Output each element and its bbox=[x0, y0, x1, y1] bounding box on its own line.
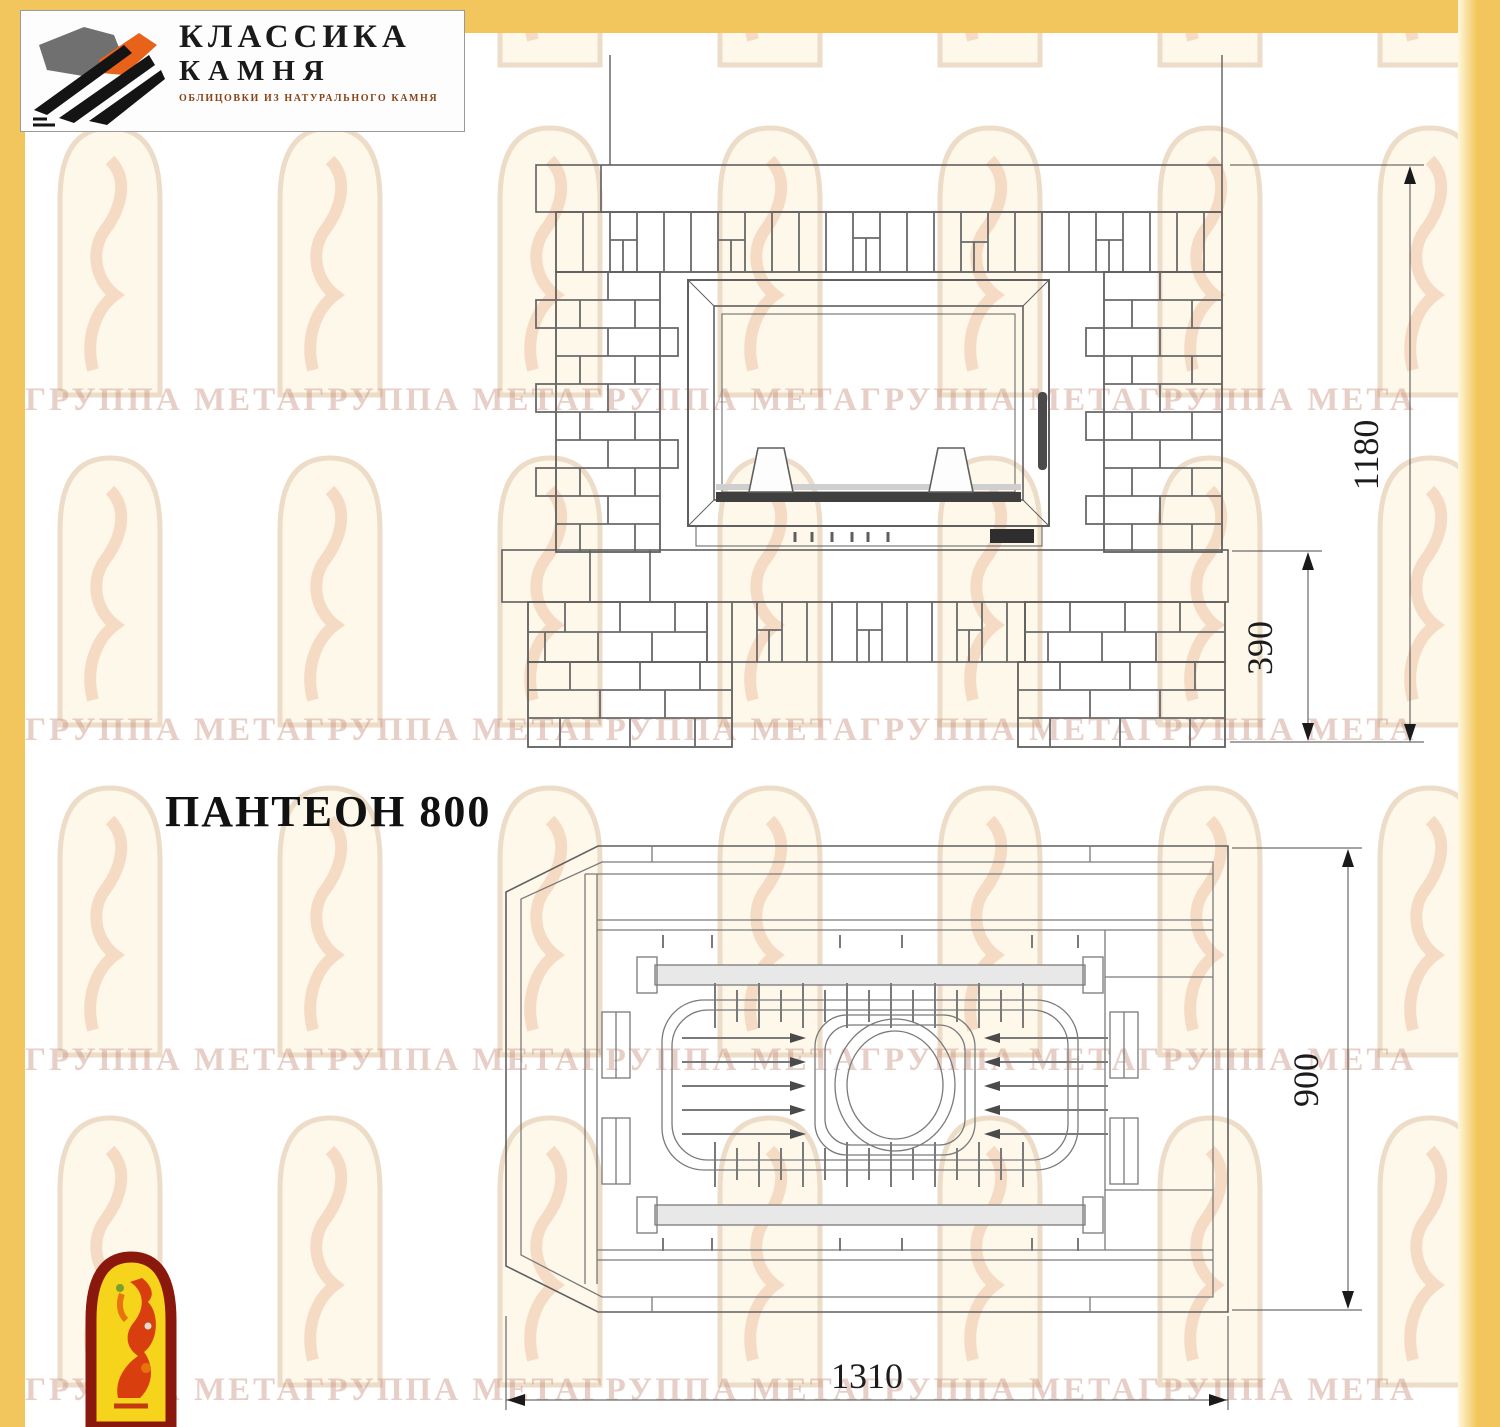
rib-arrows-left bbox=[790, 1033, 806, 1139]
brand-logo: КЛАССИКА КАМНЯ ОБЛИЦОВКИ ИЗ НАТУРАЛЬНОГО… bbox=[20, 10, 465, 132]
firebox-door bbox=[688, 280, 1049, 546]
flue-lines bbox=[610, 55, 1222, 165]
vent-slots bbox=[795, 532, 888, 542]
brand-subtitle: ОБЛИЦОВКИ ИЗ НАТУРАЛЬНОГО КАМНЯ bbox=[179, 93, 459, 104]
brand-badge bbox=[990, 529, 1034, 543]
technical-drawing: 1180 390 900 1310 bbox=[0, 0, 1500, 1427]
brand-name-line2: КАМНЯ bbox=[179, 55, 459, 87]
brand-logo-mark-icon bbox=[29, 15, 171, 127]
dim-label-total-height: 1180 bbox=[1346, 420, 1386, 491]
mantel-shelf bbox=[536, 165, 1222, 212]
rib-comb-bottom bbox=[715, 1142, 1023, 1187]
insert-back-bar bbox=[637, 1197, 1103, 1251]
under-hearth-band bbox=[528, 602, 1225, 662]
model-title: ПАНТЕОН 800 bbox=[165, 786, 491, 837]
insert-front-bar bbox=[637, 935, 1103, 993]
soldier-brick-course bbox=[556, 212, 1222, 272]
plan-view bbox=[506, 846, 1228, 1312]
right-brick-column bbox=[1086, 272, 1222, 552]
plan-outer-shell bbox=[506, 846, 1228, 1312]
rib-arrows-right bbox=[984, 1033, 1000, 1139]
rib-lines-left bbox=[682, 1038, 800, 1134]
flue-collar bbox=[815, 1015, 975, 1155]
door-handle bbox=[1038, 392, 1047, 470]
rib-comb-top bbox=[715, 983, 1023, 1028]
front-view bbox=[502, 55, 1228, 747]
dim-label-width: 1310 bbox=[831, 1356, 903, 1396]
plan-wall-joints bbox=[652, 846, 1090, 1312]
dim-label-hearth-height: 390 bbox=[1240, 621, 1280, 675]
hearth-shelf bbox=[502, 550, 1228, 602]
plan-inner-shell bbox=[521, 862, 1213, 1297]
brand-name-line1: КЛАССИКА bbox=[179, 19, 459, 55]
rib-lines-right bbox=[990, 1038, 1108, 1134]
left-brick-column bbox=[536, 272, 678, 552]
andiron-right bbox=[929, 448, 973, 492]
dim-label-depth: 900 bbox=[1286, 1053, 1326, 1107]
pedestal-legs bbox=[528, 662, 1225, 747]
firebox-grate-bar bbox=[716, 492, 1021, 502]
andiron-left bbox=[749, 448, 793, 492]
drawing-sheet: ГРУППА МЕТАГРУППА МЕТАГРУППА МЕТАГРУППА … bbox=[0, 0, 1500, 1427]
arch-emblem-icon bbox=[84, 1248, 178, 1427]
